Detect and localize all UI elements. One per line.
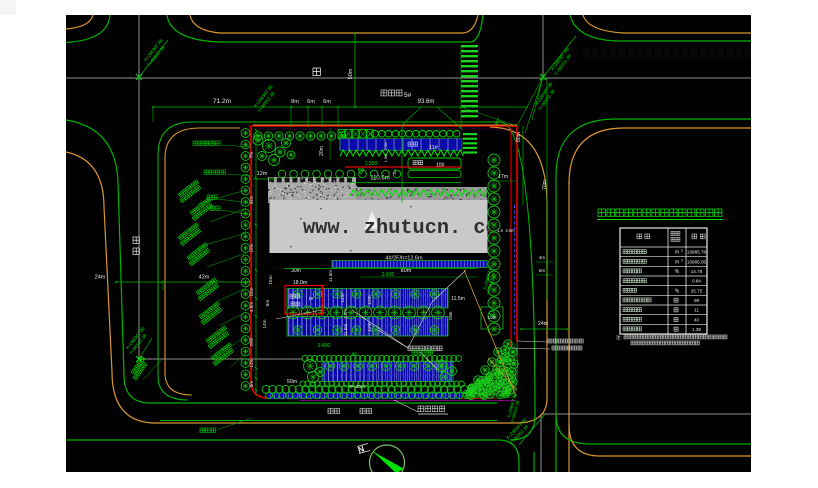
svg-text:25.75: 25.75 — [691, 288, 703, 293]
svg-text:50m: 50m — [348, 68, 354, 79]
svg-text:40: 40 — [694, 317, 700, 322]
svg-text:24m: 24m — [249, 287, 254, 296]
svg-text:24m: 24m — [538, 321, 548, 327]
svg-text:93.6m: 93.6m — [418, 99, 435, 105]
svg-text:11: 11 — [694, 308, 699, 313]
svg-text:4m: 4m — [539, 255, 546, 260]
svg-text:8m: 8m — [249, 381, 254, 388]
svg-text:13985.78: 13985.78 — [687, 250, 707, 255]
svg-text:1#: 1# — [308, 296, 314, 301]
svg-text:30m: 30m — [291, 268, 301, 274]
svg-text:20m: 20m — [319, 146, 325, 156]
svg-text:7.2m: 7.2m — [343, 309, 348, 319]
svg-text:2.5m: 2.5m — [384, 142, 388, 150]
svg-text:0.84: 0.84 — [692, 279, 701, 284]
svg-text:14m: 14m — [249, 358, 254, 367]
svg-text:17m: 17m — [498, 174, 508, 180]
svg-text:110.6m: 110.6m — [370, 176, 390, 182]
svg-text:10m: 10m — [448, 311, 453, 320]
svg-text:15m: 15m — [268, 275, 274, 284]
svg-text:11.6m: 11.6m — [343, 324, 348, 336]
svg-text:1.5m: 1.5m — [384, 154, 388, 162]
svg-text:3.600: 3.600 — [382, 272, 395, 278]
svg-text:3.600: 3.600 — [318, 343, 331, 349]
svg-text:10985.05: 10985.05 — [687, 259, 707, 264]
svg-text:4#: 4# — [308, 390, 314, 395]
svg-text:12m: 12m — [257, 171, 268, 177]
svg-text:24m: 24m — [95, 275, 106, 281]
svg-text:18.0m: 18.0m — [293, 280, 307, 286]
svg-text:99: 99 — [694, 298, 700, 303]
svg-text:Φ=10m: Φ=10m — [349, 384, 365, 390]
svg-text:%: % — [675, 288, 680, 294]
svg-text:12m: 12m — [340, 293, 346, 302]
svg-text:11.6m: 11.6m — [328, 270, 333, 282]
svg-text:1.39: 1.39 — [692, 327, 701, 332]
svg-text:m: m — [675, 250, 679, 256]
svg-text:11.5m: 11.5m — [451, 296, 465, 302]
svg-text:42m: 42m — [199, 275, 210, 281]
svg-text:50m: 50m — [287, 379, 297, 385]
svg-text:8m: 8m — [291, 99, 299, 105]
svg-text:10m: 10m — [488, 315, 497, 320]
svg-text:2: 2 — [681, 249, 683, 253]
svg-text:14.78: 14.78 — [691, 269, 703, 274]
svg-text:4.5m: 4.5m — [249, 302, 254, 312]
svg-text:%: % — [675, 269, 680, 275]
svg-text:m: m — [675, 259, 679, 265]
svg-text:4.5m: 4.5m — [505, 228, 515, 233]
svg-text:9m: 9m — [265, 300, 271, 307]
svg-text:6m: 6m — [307, 99, 315, 105]
svg-text:6m: 6m — [323, 99, 331, 105]
svg-text:71.2m: 71.2m — [213, 98, 231, 105]
svg-text:5#: 5# — [404, 92, 412, 99]
svg-text:4#: 4# — [351, 352, 357, 358]
svg-text:80m: 80m — [516, 132, 522, 142]
svg-text:29m: 29m — [249, 337, 254, 346]
svg-text:80m: 80m — [401, 268, 412, 274]
svg-text:12m: 12m — [367, 295, 373, 304]
svg-text:www. zhutucn. co: www. zhutucn. co — [303, 217, 498, 240]
svg-text:7m: 7m — [249, 152, 254, 159]
svg-text:1.5: 1.5 — [497, 228, 503, 233]
svg-text:6m: 6m — [539, 268, 546, 273]
svg-text:15m: 15m — [249, 243, 254, 252]
svg-text:14m: 14m — [262, 319, 267, 328]
svg-text:2: 2 — [681, 258, 683, 262]
svg-text:1.500: 1.500 — [365, 161, 378, 167]
svg-text:注:: 注: — [616, 334, 622, 341]
